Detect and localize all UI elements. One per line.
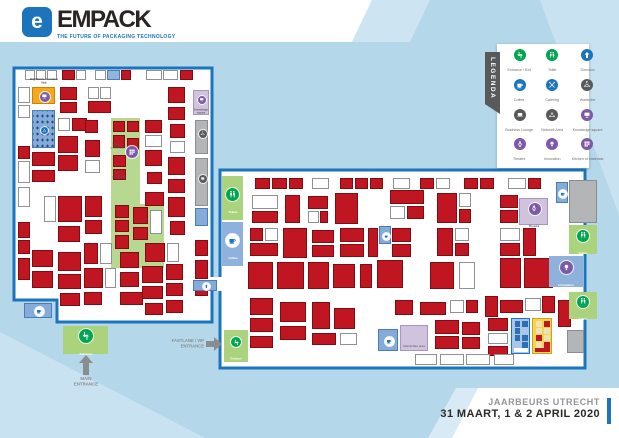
booth [280,326,306,340]
booth [500,195,518,208]
booth [464,178,478,189]
booth [436,178,450,189]
booth [390,190,424,204]
booth [462,337,480,349]
legend-item-direction: Direction [569,49,605,77]
booth [455,228,469,241]
booth [250,228,263,241]
legend-item-label: Direction [569,61,605,79]
booth [88,87,99,99]
booth [459,262,475,289]
booth [18,161,30,183]
booth [272,178,287,189]
booth [170,141,185,153]
storage-gray [569,180,597,223]
booth [450,300,464,313]
booth [120,272,139,287]
booth [85,196,102,217]
bulb-icon [546,138,558,150]
booth [312,178,329,189]
entrance-icon [79,329,93,343]
booth [170,124,185,138]
direction-chip [193,280,217,291]
booth [145,120,162,133]
booth [250,336,273,348]
booth [462,322,480,335]
booth [44,196,56,222]
booth [58,196,82,222]
mini-stand [515,335,521,341]
toilets-south-label: Toilets [569,309,597,327]
booth [166,300,183,313]
booth [459,209,471,223]
entrance-icon [514,49,526,61]
booth [133,227,148,240]
booth [407,206,424,219]
presentation-icon [40,92,50,102]
toilets-south: Toilets [569,292,597,319]
booth [312,333,336,345]
mini-stand-label-bar [514,348,528,352]
legend-item-label: Theatre [505,150,534,168]
mini-stand [544,321,550,327]
booth [285,195,300,223]
booth [60,102,77,113]
booth [312,230,334,243]
mini-stand [522,321,528,327]
legend-item-coffee: Coffee [505,79,534,107]
main-entrance-pad: Entrance [63,326,108,354]
legend-item-innovation: Innovation [535,138,568,166]
booth [32,271,53,288]
booth [500,300,523,313]
booth [355,178,368,189]
coffee-west: Coffee [222,222,243,266]
booth [340,244,364,257]
booth [18,258,30,280]
booth [252,195,278,209]
booth [105,268,116,288]
main-entrance-arrow [79,355,93,380]
mini-stand [544,335,550,341]
coffee-corner-left [24,303,52,318]
catering-icon [546,79,558,91]
booth [459,193,471,207]
booth [390,206,405,219]
lounge-chip [195,208,208,226]
legend-item-toilet: Toilet [535,49,568,77]
booth [485,296,498,317]
booth [420,178,434,189]
booth [18,105,30,118]
legend-item-label: Wardrobe [569,91,605,109]
person2-icon [226,188,239,201]
presentation-icon [198,96,206,104]
booth [18,222,30,238]
booth [150,210,162,234]
coffee-icon [559,190,567,198]
booth [127,121,139,132]
wardrobe-strip [195,120,208,154]
booth [60,293,80,306]
booth [32,152,55,166]
booth [542,296,555,313]
booth [84,292,102,305]
toilets-west: Toilets [222,176,243,220]
legend-item-catering: Catering [535,79,568,107]
mic-icon [514,138,526,150]
booth [340,228,364,242]
kitchen-label-2: Kitchenof materials [105,172,133,185]
mini-stand [544,328,550,334]
event-footer: JAARBEURS UTRECHT 31 MAART, 1 & 2 APRIL … [440,397,600,420]
mini-stand [536,335,542,341]
legend-item-label: Catering [535,91,568,109]
booth [76,70,86,80]
footer-accent-bar [607,398,611,424]
legend-item-business-lounge: Business Lounge [505,109,534,137]
person2-icon [577,230,589,242]
booth [455,243,469,256]
booth [525,298,541,311]
legend-item-label: Kitchen of materials [569,150,605,168]
booth [168,157,185,175]
booth [147,172,162,184]
booth [420,302,446,315]
booth [85,160,100,173]
booth [58,252,81,271]
booth [115,205,129,218]
hanger-icon [581,79,593,91]
legend-grid: Entrance / ExitToiletDirectionCoffeeCate… [505,49,587,166]
booth [32,170,55,182]
booth [265,228,278,241]
innovation-area-label: Innovation [549,275,583,293]
coffee-icon [514,79,526,91]
legend-item-knowledge-square: Knowledge square [569,109,605,137]
booth [250,298,273,315]
booth [395,300,413,315]
booth [289,178,303,189]
booth [133,207,148,224]
booth [85,120,98,133]
legend-item-entrance-exit: Entrance / Exit [505,49,534,77]
booth [145,303,163,315]
legend-item-wardrobe: Wardrobe [569,79,605,107]
legend-item-network-area: Network Area [535,109,568,137]
booth [334,308,355,329]
booth [255,178,270,189]
booth [168,87,185,103]
booth [167,243,179,262]
legend-item-theatre: Theatre [505,138,534,166]
booth [142,286,163,299]
booth [166,283,183,296]
booth [168,197,185,217]
booth [142,266,163,283]
booth [250,243,278,256]
booth [121,70,131,80]
logo-tagline: THE FUTURE OF PACKAGING TECHNOLOGY [57,34,175,40]
booth [85,220,102,234]
laptop-icon [199,175,207,183]
booth [283,228,307,258]
entrance-icon [231,337,241,347]
booth [252,211,278,223]
booth [333,264,355,288]
booth [168,107,185,120]
coffee-corner-south [378,329,398,351]
booth [248,262,273,289]
booth [145,192,164,206]
booth [440,354,464,365]
empack-logo: e EMPACK THE FUTURE OF PACKAGING TECHNOL… [22,7,175,40]
theatre-area: Theatre [519,198,548,225]
booth [437,193,457,223]
booth [195,240,208,256]
booth [88,101,111,113]
booth [435,320,459,334]
stand-blue [379,226,391,244]
coffee-icon [383,233,390,240]
booth [145,135,162,147]
booth [18,187,30,207]
presentation-icon [581,109,593,121]
logo-name: EMPACK [57,7,175,33]
booth [308,262,329,289]
legend-item-label: Network Area [535,121,568,139]
booth [466,300,478,313]
fastlane-entrance-pad-label: Entrance [224,348,248,366]
booth [84,243,98,264]
booth [430,262,454,289]
booth [308,196,328,209]
gray-south [567,330,584,353]
booth [377,260,403,288]
booth [113,121,125,132]
coffee-icon [35,307,44,316]
booth [500,258,521,288]
booth [100,243,112,264]
toilets-west-label: Toilets [222,202,243,220]
booth [340,333,357,345]
booth [320,211,328,223]
arrowUp-icon [203,283,210,290]
logo-mark-icon: e [22,7,52,37]
legend-item-label: Entrance / Exit [505,61,534,79]
booth [145,243,165,262]
booth [32,250,53,267]
booth [312,302,330,329]
venue-name: JAARBEURS UTRECHT [440,397,600,407]
interactive-area-label: Interactive area [401,336,427,354]
empack-floorplan: Knowledge squareEntranceEntranceToiletsC… [0,0,619,438]
legend-item-kitchen-of-materials: Kitchen of materials [569,138,605,166]
booth [18,240,30,254]
interactive-area: Interactive area [400,325,428,351]
booth [113,155,126,167]
fastlane-label: FASTLANE / VIPENTRANCE [156,338,204,359]
booth [340,178,353,189]
knowledge-square: Knowledge square [193,90,209,115]
booth [180,70,193,80]
booth [84,268,103,288]
hanger-icon [199,130,207,138]
booth [95,70,106,80]
coffee-icon [226,234,239,247]
booth [500,243,520,256]
booth [170,221,185,235]
legend-item-label: Innovation [535,150,568,168]
booth [58,118,70,131]
booth [312,245,334,257]
mini-stand [522,328,528,334]
fastlane-arrow [206,337,222,356]
booth [466,354,490,365]
theatre-area-label: Theatre [520,216,547,234]
laptop-icon [514,109,526,121]
booth [85,140,100,157]
person2-icon [577,296,589,308]
mini-stand [536,328,542,334]
mini-stand-label-bar [535,348,550,352]
booth [58,155,78,171]
legend-item-label: Toilet [535,61,568,79]
network-icon [41,127,48,134]
booth [488,318,508,331]
booth [120,292,143,305]
booth [115,220,129,232]
mini-stand [536,321,542,327]
booth [528,178,541,189]
booth [115,235,129,249]
booth [60,87,77,100]
booth [437,228,453,256]
booth [500,210,518,223]
brightlands-label: Brightlands InnovationHub [26,78,62,91]
booth [166,264,183,280]
coffee-icon [385,337,394,346]
booth [195,260,208,279]
booth [480,178,494,189]
bulb-icon [560,261,573,274]
booth [494,354,514,365]
booth [277,262,304,289]
legend-item-label: Knowledge square [569,121,605,139]
mic-icon [529,203,541,215]
booth [500,228,520,241]
booth [368,228,378,257]
booth [370,178,383,189]
booth [18,146,30,159]
booth [392,244,411,257]
legend-item-label: Business Lounge [505,121,534,139]
booth [168,179,185,193]
event-dates: 31 MAART, 1 & 2 APRIL 2020 [440,408,600,420]
booth [58,136,78,153]
mini-stand [522,335,528,341]
legend-tab: LEGENDA [485,52,500,114]
mini-stand [515,321,521,327]
cafe-strip [556,182,568,203]
booth [58,274,81,289]
coffee-west-label: Coffee [222,248,243,266]
booth [415,354,437,365]
booth [100,87,111,99]
booth [62,70,75,80]
arrowUp-icon [581,49,593,61]
booth [508,178,526,189]
booth [280,302,306,322]
booth [120,252,139,268]
booth [392,228,411,242]
kitchen-label-1: Kitchenof materials [103,143,131,156]
startup-yellow [532,318,552,354]
legend: LEGENDA Entrance / ExitToiletDirectionCo… [497,44,589,168]
booth [146,70,162,80]
mini-stand [515,328,521,334]
innovation-area: Innovation [549,256,583,287]
booth [335,193,358,224]
fastlane-entrance-pad: Entrance [224,330,248,362]
booth [360,264,372,288]
booth [308,211,319,223]
booth [488,333,508,344]
network-icon [546,109,558,121]
pavilion-blue [511,318,530,354]
booth [145,150,162,166]
legend-item-label: Coffee [505,91,534,109]
lounge-strip [195,158,208,206]
booth [250,318,273,332]
booth [163,70,178,80]
booth [58,226,80,242]
booth [107,70,120,80]
toilets-north: Toilets [569,225,597,254]
booth [393,178,410,189]
grid-icon [581,138,593,150]
person2-icon [546,49,558,61]
booth [435,336,459,349]
seating-area [32,110,55,148]
